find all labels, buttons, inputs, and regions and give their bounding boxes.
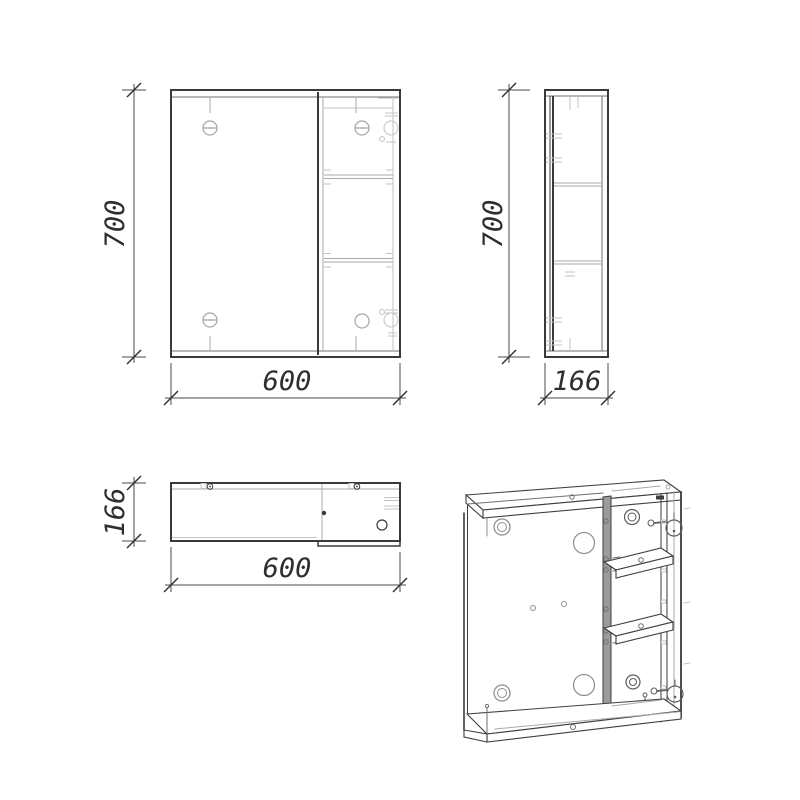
side-view-carcass <box>545 90 608 357</box>
front-height-dimension-label: 700 <box>100 200 131 249</box>
top-width-dimension-label: 600 <box>263 553 312 584</box>
front-width-dimension-label: 600 <box>263 366 312 397</box>
top-depth-dimension-label: 166 <box>100 488 131 537</box>
side-height-dimension-label: 700 <box>478 200 509 249</box>
front-view-carcass <box>171 90 400 357</box>
side-depth-dimension-label: 166 <box>553 366 602 397</box>
technical-drawing-cabinet: 700 600 <box>0 0 800 800</box>
top-view-carcass <box>171 483 400 541</box>
